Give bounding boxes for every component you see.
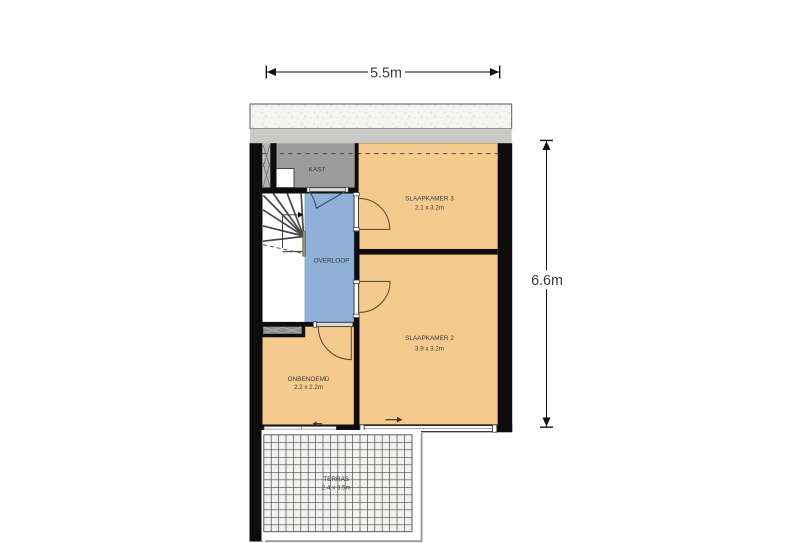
svg-text:KAST: KAST [309,167,326,174]
svg-text:SLAAPKAMER 3: SLAAPKAMER 3 [405,196,454,203]
svg-text:ONBENOEMD: ONBENOEMD [288,376,330,383]
svg-text:6.6m: 6.6m [531,273,563,289]
svg-text:OVERLOOP: OVERLOOP [314,258,350,265]
svg-text:2.4 x 3.5m: 2.4 x 3.5m [322,485,351,492]
svg-text:5.5m: 5.5m [370,65,402,81]
svg-text:2.2 x 2.2m: 2.2 x 2.2m [294,384,323,391]
svg-text:2.1 x 3.2m: 2.1 x 3.2m [415,204,444,211]
svg-text:3.9 x 3.2m: 3.9 x 3.2m [415,346,444,353]
svg-text:TERRAS: TERRAS [323,476,349,483]
svg-text:SLAAPKAMER 2: SLAAPKAMER 2 [405,335,454,342]
